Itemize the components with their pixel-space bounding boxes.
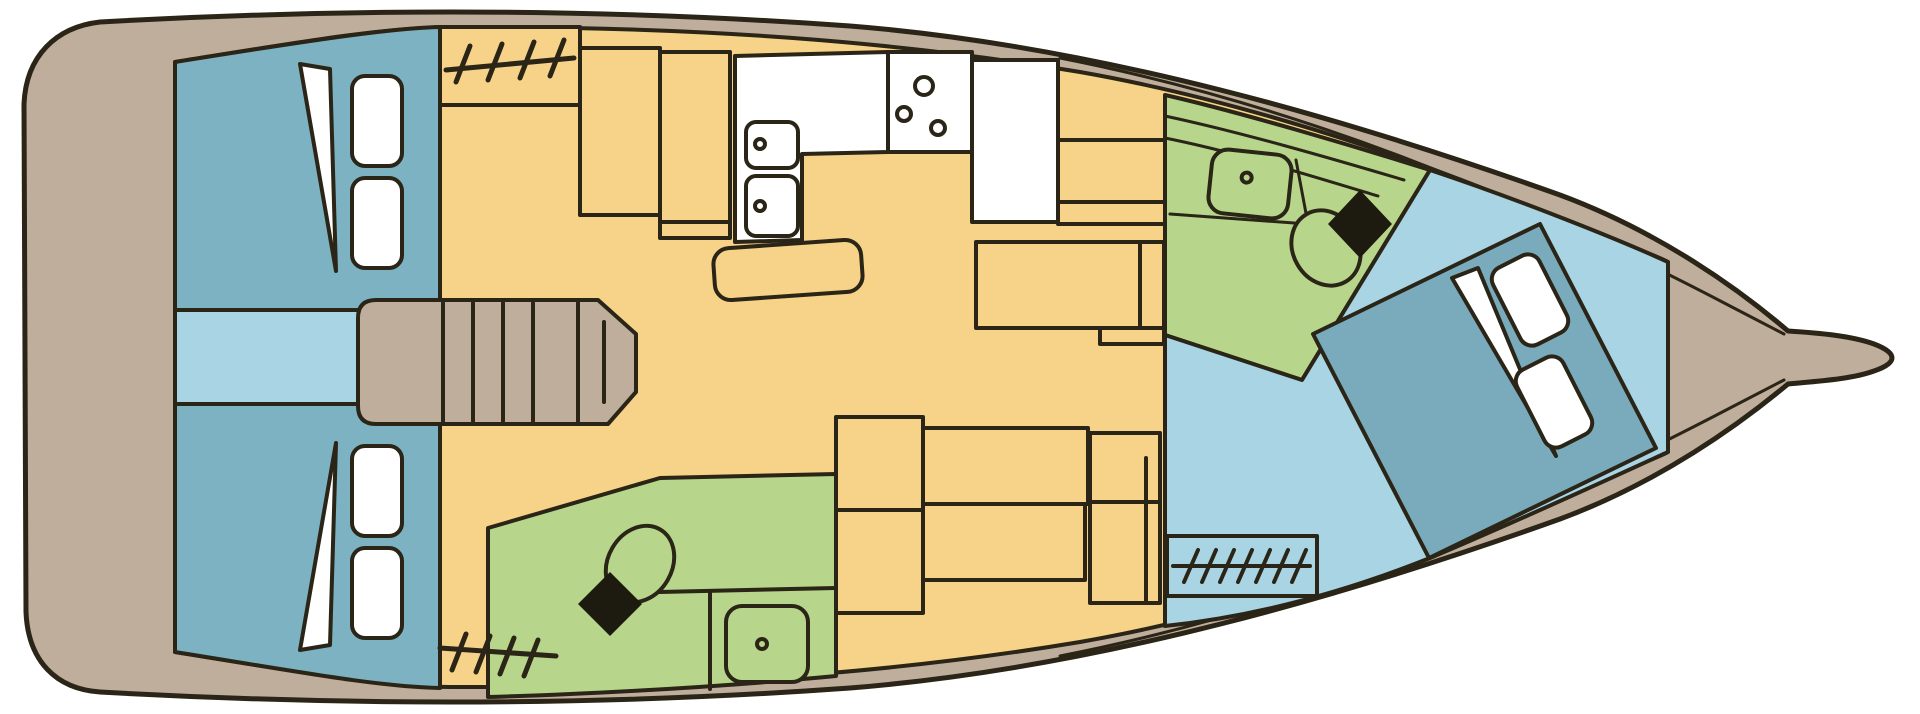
nav-seat-back (1140, 242, 1164, 328)
pillow-icon (352, 178, 402, 268)
saloon-table (712, 239, 863, 301)
pillow-icon (352, 548, 402, 638)
galley-cabinet (660, 52, 730, 222)
galley-cabinet (580, 48, 660, 215)
companionway-steps (358, 300, 636, 424)
stove-counter (888, 52, 972, 152)
drain-icon (755, 139, 765, 149)
drain-icon (1241, 172, 1252, 183)
galley-cabinet (660, 222, 730, 238)
nav-station (976, 242, 1164, 344)
pillow-icon (352, 76, 402, 166)
galley-locker (1058, 202, 1166, 224)
deck-plan-svg (0, 0, 1920, 714)
drain-icon (757, 639, 767, 649)
nav-table (976, 242, 1140, 328)
settee (923, 504, 1085, 580)
settee (923, 428, 1088, 504)
drain-icon (755, 201, 765, 211)
galley-locker (1058, 140, 1166, 202)
nav-shelf (1100, 328, 1164, 344)
yacht-deck-plan (0, 0, 1920, 714)
washbasin-icon (1207, 148, 1293, 220)
hanging-locker-top (440, 27, 580, 105)
refrigerator-counter (972, 60, 1058, 222)
settee (1090, 433, 1160, 603)
pillow-icon (352, 446, 402, 536)
settee (836, 417, 923, 613)
